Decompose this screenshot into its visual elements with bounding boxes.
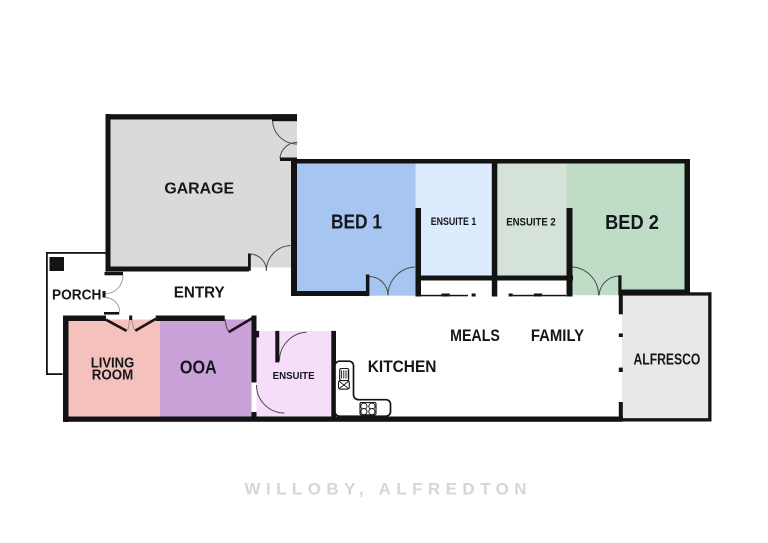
svg-text:KITCHEN: KITCHEN bbox=[368, 358, 437, 376]
svg-text:ALFRESCO: ALFRESCO bbox=[634, 351, 701, 368]
svg-text:GARAGE: GARAGE bbox=[164, 181, 234, 198]
svg-text:ENTRY: ENTRY bbox=[174, 285, 226, 302]
svg-text:ENSUITE 2: ENSUITE 2 bbox=[506, 216, 556, 228]
svg-text:ENSUITE: ENSUITE bbox=[273, 371, 315, 382]
svg-text:BED 1: BED 1 bbox=[331, 211, 382, 234]
svg-text:ENSUITE 1: ENSUITE 1 bbox=[431, 216, 477, 228]
svg-text:MEALS: MEALS bbox=[450, 327, 500, 345]
svg-text:BED 2: BED 2 bbox=[605, 211, 659, 234]
svg-text:PORCH: PORCH bbox=[52, 287, 101, 304]
svg-text:FAMILY: FAMILY bbox=[531, 327, 584, 345]
svg-text:OOA: OOA bbox=[180, 358, 217, 378]
svg-text:ROOM: ROOM bbox=[92, 367, 134, 383]
